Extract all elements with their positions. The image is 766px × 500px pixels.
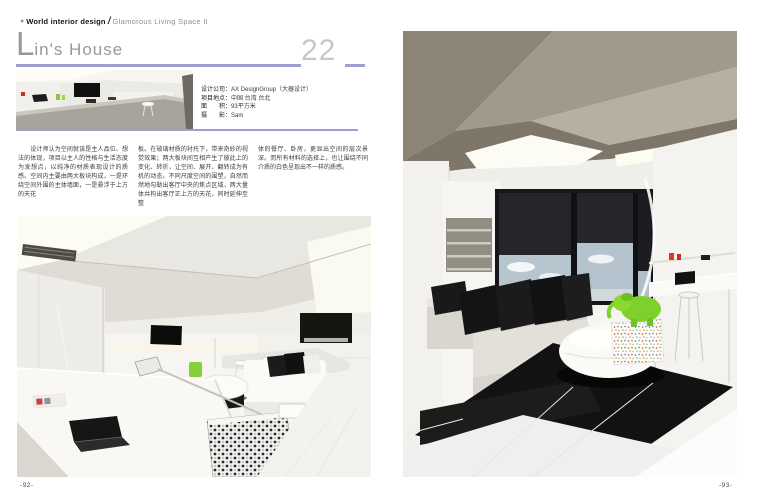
photo-living-workspace: [17, 216, 371, 477]
roller-shade: [638, 193, 651, 271]
series-title: Glamorous Living Space II: [113, 17, 208, 26]
title-initial: L: [16, 29, 34, 59]
laptop-small: [32, 94, 48, 102]
article-column-3: 体的餐厅、卧房，更显出空间的层次景深。而所有材料的选择上，也让围绕不同介质的白色…: [258, 146, 368, 209]
page-right: -93-: [383, 0, 766, 500]
info-row-photographer: 摄 影：Sam: [201, 112, 369, 121]
info-row-company: 设计公司：AX DesignGroup（大器设计）: [201, 86, 369, 95]
bullet-icon: ●: [20, 18, 24, 25]
roller-shade: [499, 193, 571, 255]
red-object: [669, 253, 674, 260]
black-pillow: [459, 285, 501, 335]
green-chair: [189, 362, 202, 377]
tv: [150, 325, 182, 345]
page-number-left: -92-: [20, 482, 34, 489]
page-number-right: -93-: [719, 482, 733, 489]
accent-rule: [16, 64, 301, 67]
white-pillow: [303, 355, 321, 374]
red-appliance: [21, 92, 25, 96]
accent-dash: [345, 64, 365, 67]
accent-rule-bottom: [16, 129, 358, 131]
magazine-title: World interior design: [26, 17, 105, 26]
project-title: Lin's House: [16, 29, 123, 59]
roller-shade: [577, 193, 633, 243]
magazine-spread: ●World interior design/Glamorous Living …: [0, 0, 766, 500]
confetti-box: [611, 319, 664, 365]
tv-small: [74, 83, 100, 97]
bar-stool-small: [142, 102, 154, 106]
magazine: [33, 394, 66, 408]
photo-living-room: [403, 31, 737, 477]
green-accent: [56, 94, 60, 100]
article-column-1: 设计师认为空间就该是主人品位、想法的体现，项目以主人的性格与生活态度为发想点，以…: [18, 146, 128, 209]
info-row-area: 面 积：93平方米: [201, 103, 369, 112]
header-slash-icon: /: [108, 16, 111, 27]
project-info: 设计公司：AX DesignGroup（大器设计） 项目地点：中国 台湾 台北 …: [201, 86, 369, 120]
laptop: [675, 271, 695, 285]
chapter-number: 22: [301, 36, 336, 66]
info-row-location: 项目地点：中国 台湾 台北: [201, 95, 369, 104]
article-text: 设计师认为空间就该是主人品位、想法的体现，项目以主人的性格与生活态度为发想点，以…: [18, 146, 370, 209]
series-header: ●World interior design/Glamorous Living …: [20, 11, 208, 29]
photo-kitchen-panorama: [16, 70, 193, 129]
article-column-2: 板。在玻璃材质的衬托下，带来奇妙的视觉效果；两大板块间互相产生了彼此上的变化、转…: [138, 146, 248, 209]
wall-niche-shelves: [446, 218, 492, 272]
title-rest: in's House: [34, 42, 123, 58]
red-object: [677, 254, 681, 260]
page-left: ●World interior design/Glamorous Living …: [0, 0, 383, 500]
black-pillow: [284, 352, 307, 375]
